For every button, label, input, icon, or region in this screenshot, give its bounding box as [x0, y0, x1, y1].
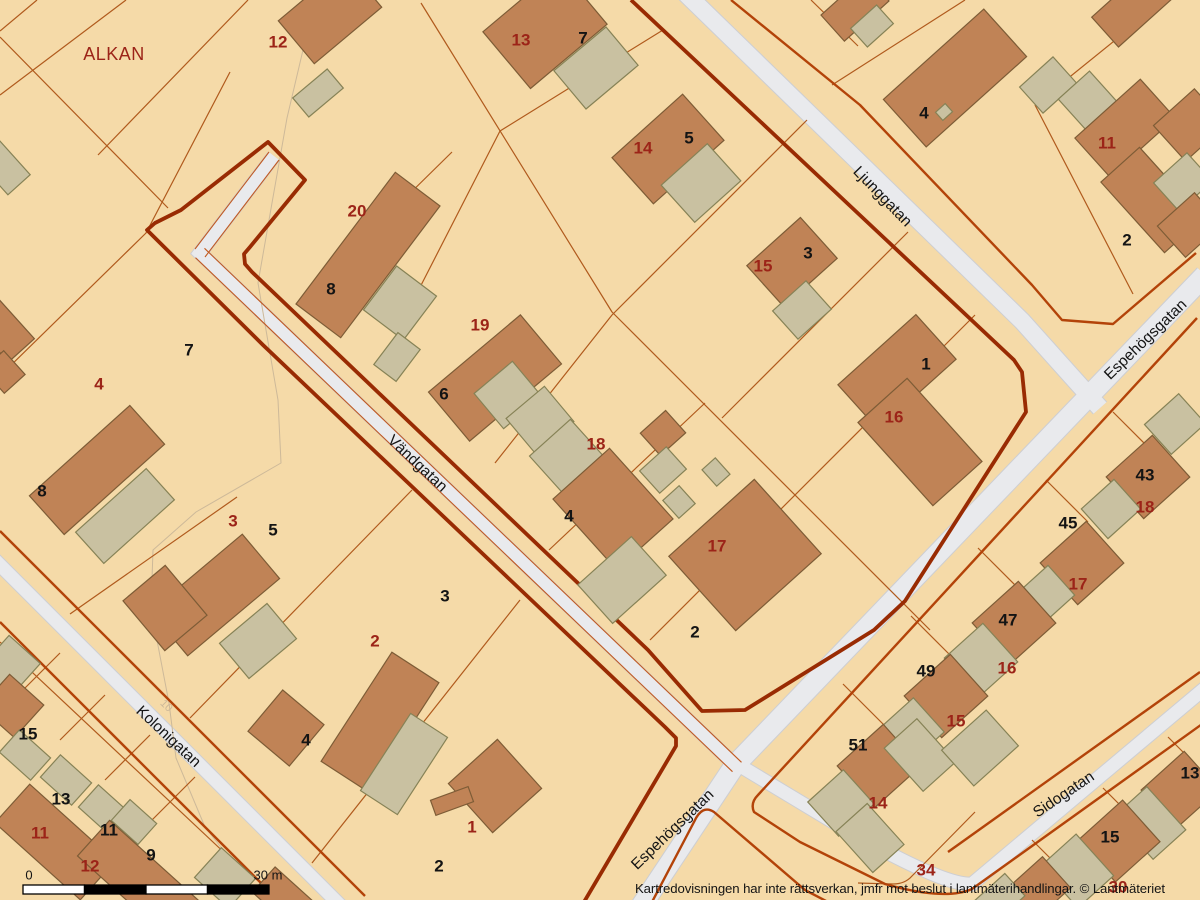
svg-text:Kartredovisningen har inte rät: Kartredovisningen har inte rättsverkan, …	[635, 881, 1165, 896]
svg-text:49: 49	[917, 661, 936, 680]
svg-text:14: 14	[634, 138, 653, 157]
svg-text:4: 4	[564, 506, 574, 525]
svg-text:2: 2	[370, 631, 379, 650]
svg-text:13: 13	[52, 789, 71, 808]
svg-text:16: 16	[998, 658, 1017, 677]
svg-text:2: 2	[434, 856, 443, 875]
svg-text:45: 45	[1059, 513, 1078, 532]
svg-text:16: 16	[885, 407, 904, 426]
svg-text:11: 11	[100, 820, 118, 839]
svg-text:15: 15	[947, 711, 966, 730]
svg-text:4: 4	[94, 374, 104, 393]
svg-text:2: 2	[690, 622, 699, 641]
svg-text:5: 5	[684, 128, 693, 147]
svg-text:13: 13	[1181, 763, 1200, 782]
svg-text:14: 14	[869, 793, 888, 812]
svg-text:18: 18	[587, 434, 606, 453]
svg-text:11: 11	[1098, 133, 1116, 152]
svg-text:4: 4	[301, 730, 311, 749]
svg-text:ALKAN: ALKAN	[83, 44, 145, 64]
svg-text:15: 15	[1101, 827, 1120, 846]
svg-text:34: 34	[917, 860, 936, 879]
svg-text:5: 5	[268, 520, 277, 539]
svg-text:11: 11	[31, 823, 49, 842]
svg-text:4: 4	[919, 103, 929, 122]
svg-text:3: 3	[803, 243, 812, 262]
svg-text:3: 3	[228, 511, 237, 530]
svg-text:19: 19	[471, 315, 490, 334]
svg-text:12: 12	[81, 856, 100, 875]
svg-text:9: 9	[146, 845, 155, 864]
svg-text:47: 47	[999, 610, 1018, 629]
svg-text:2: 2	[1122, 230, 1131, 249]
svg-text:1: 1	[921, 354, 930, 373]
svg-text:20: 20	[348, 201, 367, 220]
svg-text:7: 7	[578, 28, 587, 47]
svg-text:18: 18	[1136, 497, 1155, 516]
svg-text:30 m: 30 m	[254, 867, 283, 882]
svg-text:1: 1	[467, 817, 476, 836]
svg-text:3: 3	[440, 586, 449, 605]
svg-text:15: 15	[754, 256, 773, 275]
svg-text:15: 15	[19, 724, 38, 743]
svg-text:8: 8	[37, 481, 46, 500]
svg-text:51: 51	[849, 735, 868, 754]
svg-text:12: 12	[269, 32, 288, 51]
svg-text:6: 6	[439, 384, 448, 403]
svg-text:17: 17	[708, 536, 727, 555]
svg-text:7: 7	[184, 340, 193, 359]
svg-text:0: 0	[25, 867, 32, 882]
svg-text:13: 13	[512, 30, 531, 49]
svg-text:17: 17	[1069, 574, 1088, 593]
svg-text:8: 8	[326, 279, 335, 298]
svg-text:43: 43	[1136, 465, 1155, 484]
